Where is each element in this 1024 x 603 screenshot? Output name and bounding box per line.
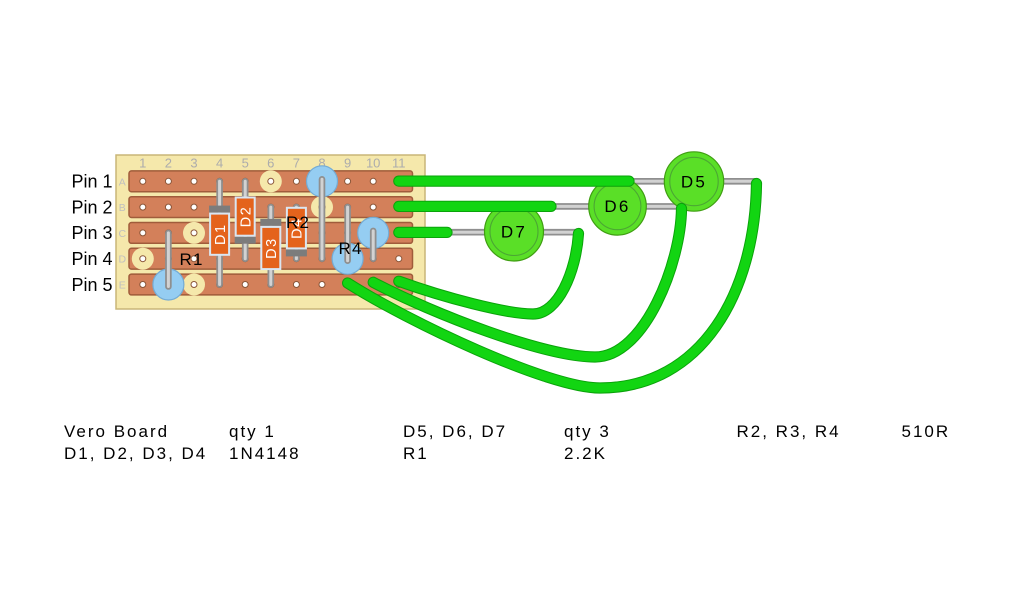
svg-text:D3: D3 (264, 237, 280, 259)
svg-text:qty 3: qty 3 (564, 422, 611, 441)
svg-text:D1, D2, D3, D4: D1, D2, D3, D4 (64, 444, 207, 463)
svg-text:11: 11 (392, 156, 406, 171)
svg-text:6: 6 (267, 156, 274, 171)
svg-text:E: E (119, 280, 126, 292)
svg-text:1: 1 (139, 156, 146, 171)
svg-text:Vero Board: Vero Board (64, 422, 169, 441)
svg-text:Pin 4: Pin 4 (71, 249, 112, 269)
svg-text:B: B (119, 202, 126, 214)
svg-text:510R: 510R (902, 422, 951, 441)
svg-text:Pin 2: Pin 2 (71, 197, 112, 217)
svg-text:9: 9 (344, 156, 351, 171)
svg-text:R4: R4 (339, 239, 363, 258)
svg-text:D5, D6, D7: D5, D6, D7 (403, 422, 507, 441)
svg-text:R1: R1 (180, 250, 204, 269)
svg-text:R2: R2 (286, 213, 310, 232)
svg-text:D2: D2 (238, 206, 254, 228)
svg-text:R1: R1 (403, 444, 429, 463)
svg-text:Pin 1: Pin 1 (71, 172, 112, 192)
svg-text:4: 4 (216, 156, 223, 171)
svg-text:7: 7 (293, 156, 300, 171)
svg-text:D6: D6 (604, 197, 630, 216)
svg-text:qty 1: qty 1 (229, 422, 276, 441)
svg-text:5: 5 (242, 156, 249, 171)
svg-text:1N4148: 1N4148 (229, 444, 301, 463)
svg-text:D: D (119, 254, 127, 266)
svg-text:Pin 5: Pin 5 (71, 275, 112, 295)
svg-text:2.2K: 2.2K (564, 444, 607, 463)
svg-text:C: C (119, 228, 127, 240)
svg-text:D7: D7 (501, 222, 527, 241)
svg-text:D1: D1 (213, 223, 229, 245)
svg-text:Pin 3: Pin 3 (71, 223, 112, 243)
svg-text:2: 2 (165, 156, 172, 171)
svg-text:D5: D5 (681, 172, 707, 191)
svg-text:3: 3 (190, 156, 197, 171)
svg-text:A: A (119, 176, 126, 188)
svg-text:R2, R3, R4: R2, R3, R4 (737, 422, 841, 441)
svg-text:10: 10 (366, 156, 380, 171)
